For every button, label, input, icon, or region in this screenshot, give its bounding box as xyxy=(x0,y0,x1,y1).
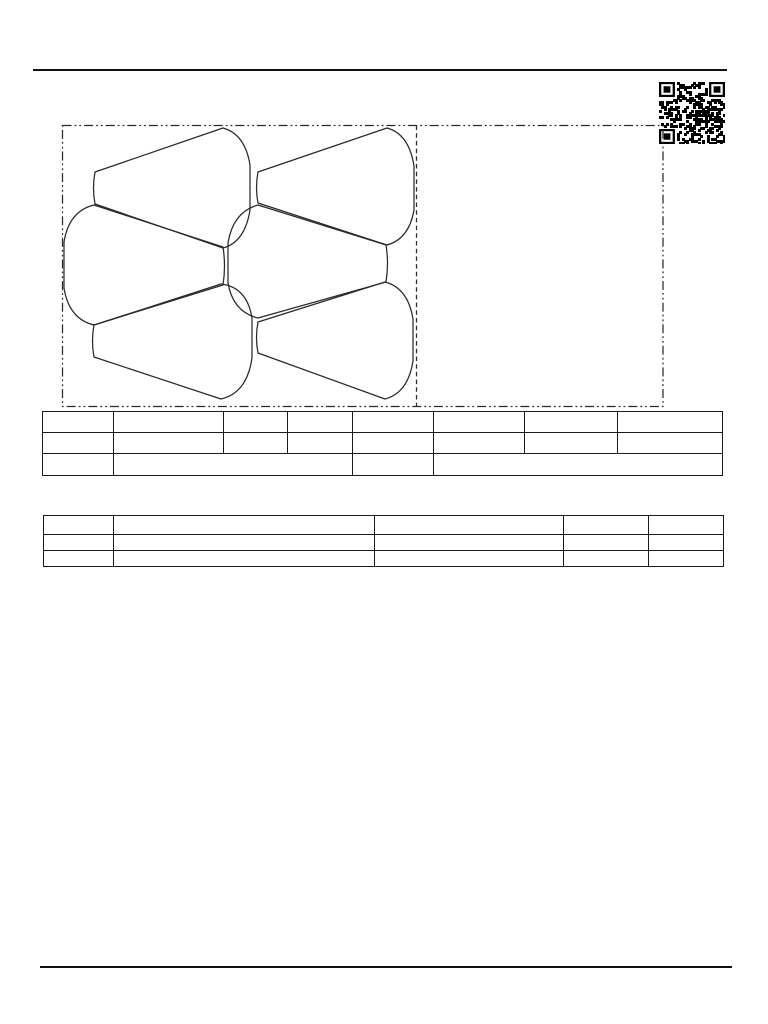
table-cell xyxy=(375,535,564,551)
table-cell xyxy=(564,535,649,551)
table-cell xyxy=(375,516,564,535)
table-cell xyxy=(434,454,723,476)
table-cell xyxy=(564,516,649,535)
table-cell xyxy=(434,412,525,433)
table-cell xyxy=(114,535,375,551)
table-cell xyxy=(434,433,525,454)
table-row xyxy=(44,535,724,551)
table-cell xyxy=(224,412,288,433)
cut-boundary-box xyxy=(63,126,664,407)
piece-middle-right xyxy=(228,205,388,318)
spec-table-lower xyxy=(43,515,724,567)
table-cell xyxy=(43,454,114,476)
table-cell xyxy=(353,433,434,454)
table-cell xyxy=(649,551,724,567)
table-cell xyxy=(114,516,375,535)
table-row xyxy=(43,454,723,476)
piece-middle-left xyxy=(64,205,225,325)
piece-top-right xyxy=(257,128,415,245)
table-cell xyxy=(618,433,723,454)
footer-rule xyxy=(40,966,732,968)
table-cell xyxy=(114,454,353,476)
table-row xyxy=(43,433,723,454)
table-cell xyxy=(114,412,224,433)
table-cell xyxy=(618,412,723,433)
table-row xyxy=(43,412,723,433)
table-cell xyxy=(353,412,434,433)
table-cell xyxy=(525,433,618,454)
table-cell xyxy=(44,535,114,551)
table-cell xyxy=(525,412,618,433)
table-cell xyxy=(43,433,114,454)
spec-table-upper xyxy=(42,411,723,476)
table-cell xyxy=(114,551,375,567)
table-cell xyxy=(375,551,564,567)
table-cell xyxy=(649,535,724,551)
table-cell xyxy=(288,412,353,433)
document-page xyxy=(0,0,768,1024)
piece-bottom-right xyxy=(257,282,414,399)
pattern-layout xyxy=(0,0,768,1024)
table-cell xyxy=(44,516,114,535)
table-cell xyxy=(44,551,114,567)
table-row xyxy=(44,516,724,535)
table-cell xyxy=(288,433,353,454)
table-cell xyxy=(224,433,288,454)
table-cell xyxy=(564,551,649,567)
table-cell xyxy=(114,433,224,454)
table-cell xyxy=(649,516,724,535)
table-row xyxy=(44,551,724,567)
table-cell xyxy=(43,412,114,433)
table-cell xyxy=(353,454,434,476)
